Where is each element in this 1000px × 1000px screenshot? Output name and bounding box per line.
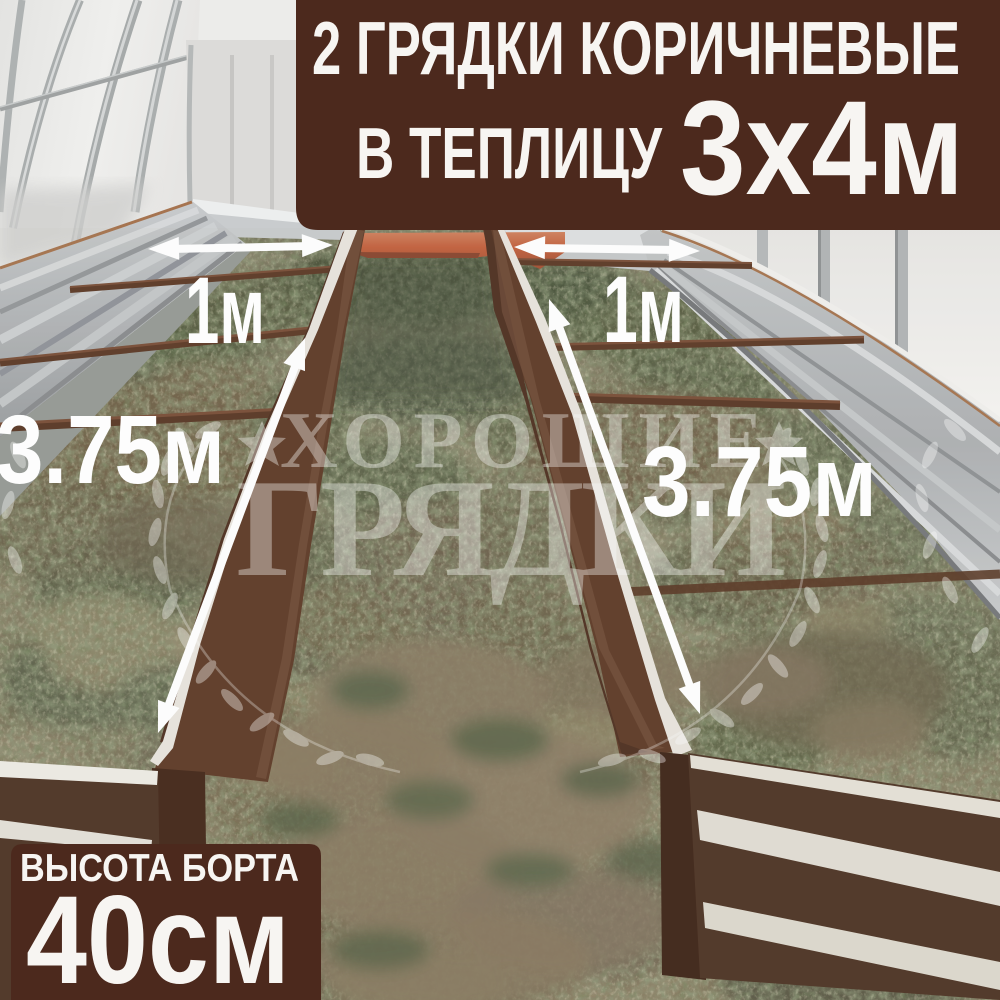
svg-text:3.75м: 3.75м: [0, 395, 225, 504]
svg-text:3х4м: 3х4м: [680, 74, 964, 223]
svg-text:3.75м: 3.75м: [642, 426, 877, 538]
svg-text:40см: 40см: [26, 871, 290, 1000]
svg-text:1м: 1м: [603, 257, 684, 363]
svg-text:В ТЕПЛИЦУ: В ТЕПЛИЦУ: [356, 114, 663, 194]
svg-text:1м: 1м: [185, 258, 265, 364]
